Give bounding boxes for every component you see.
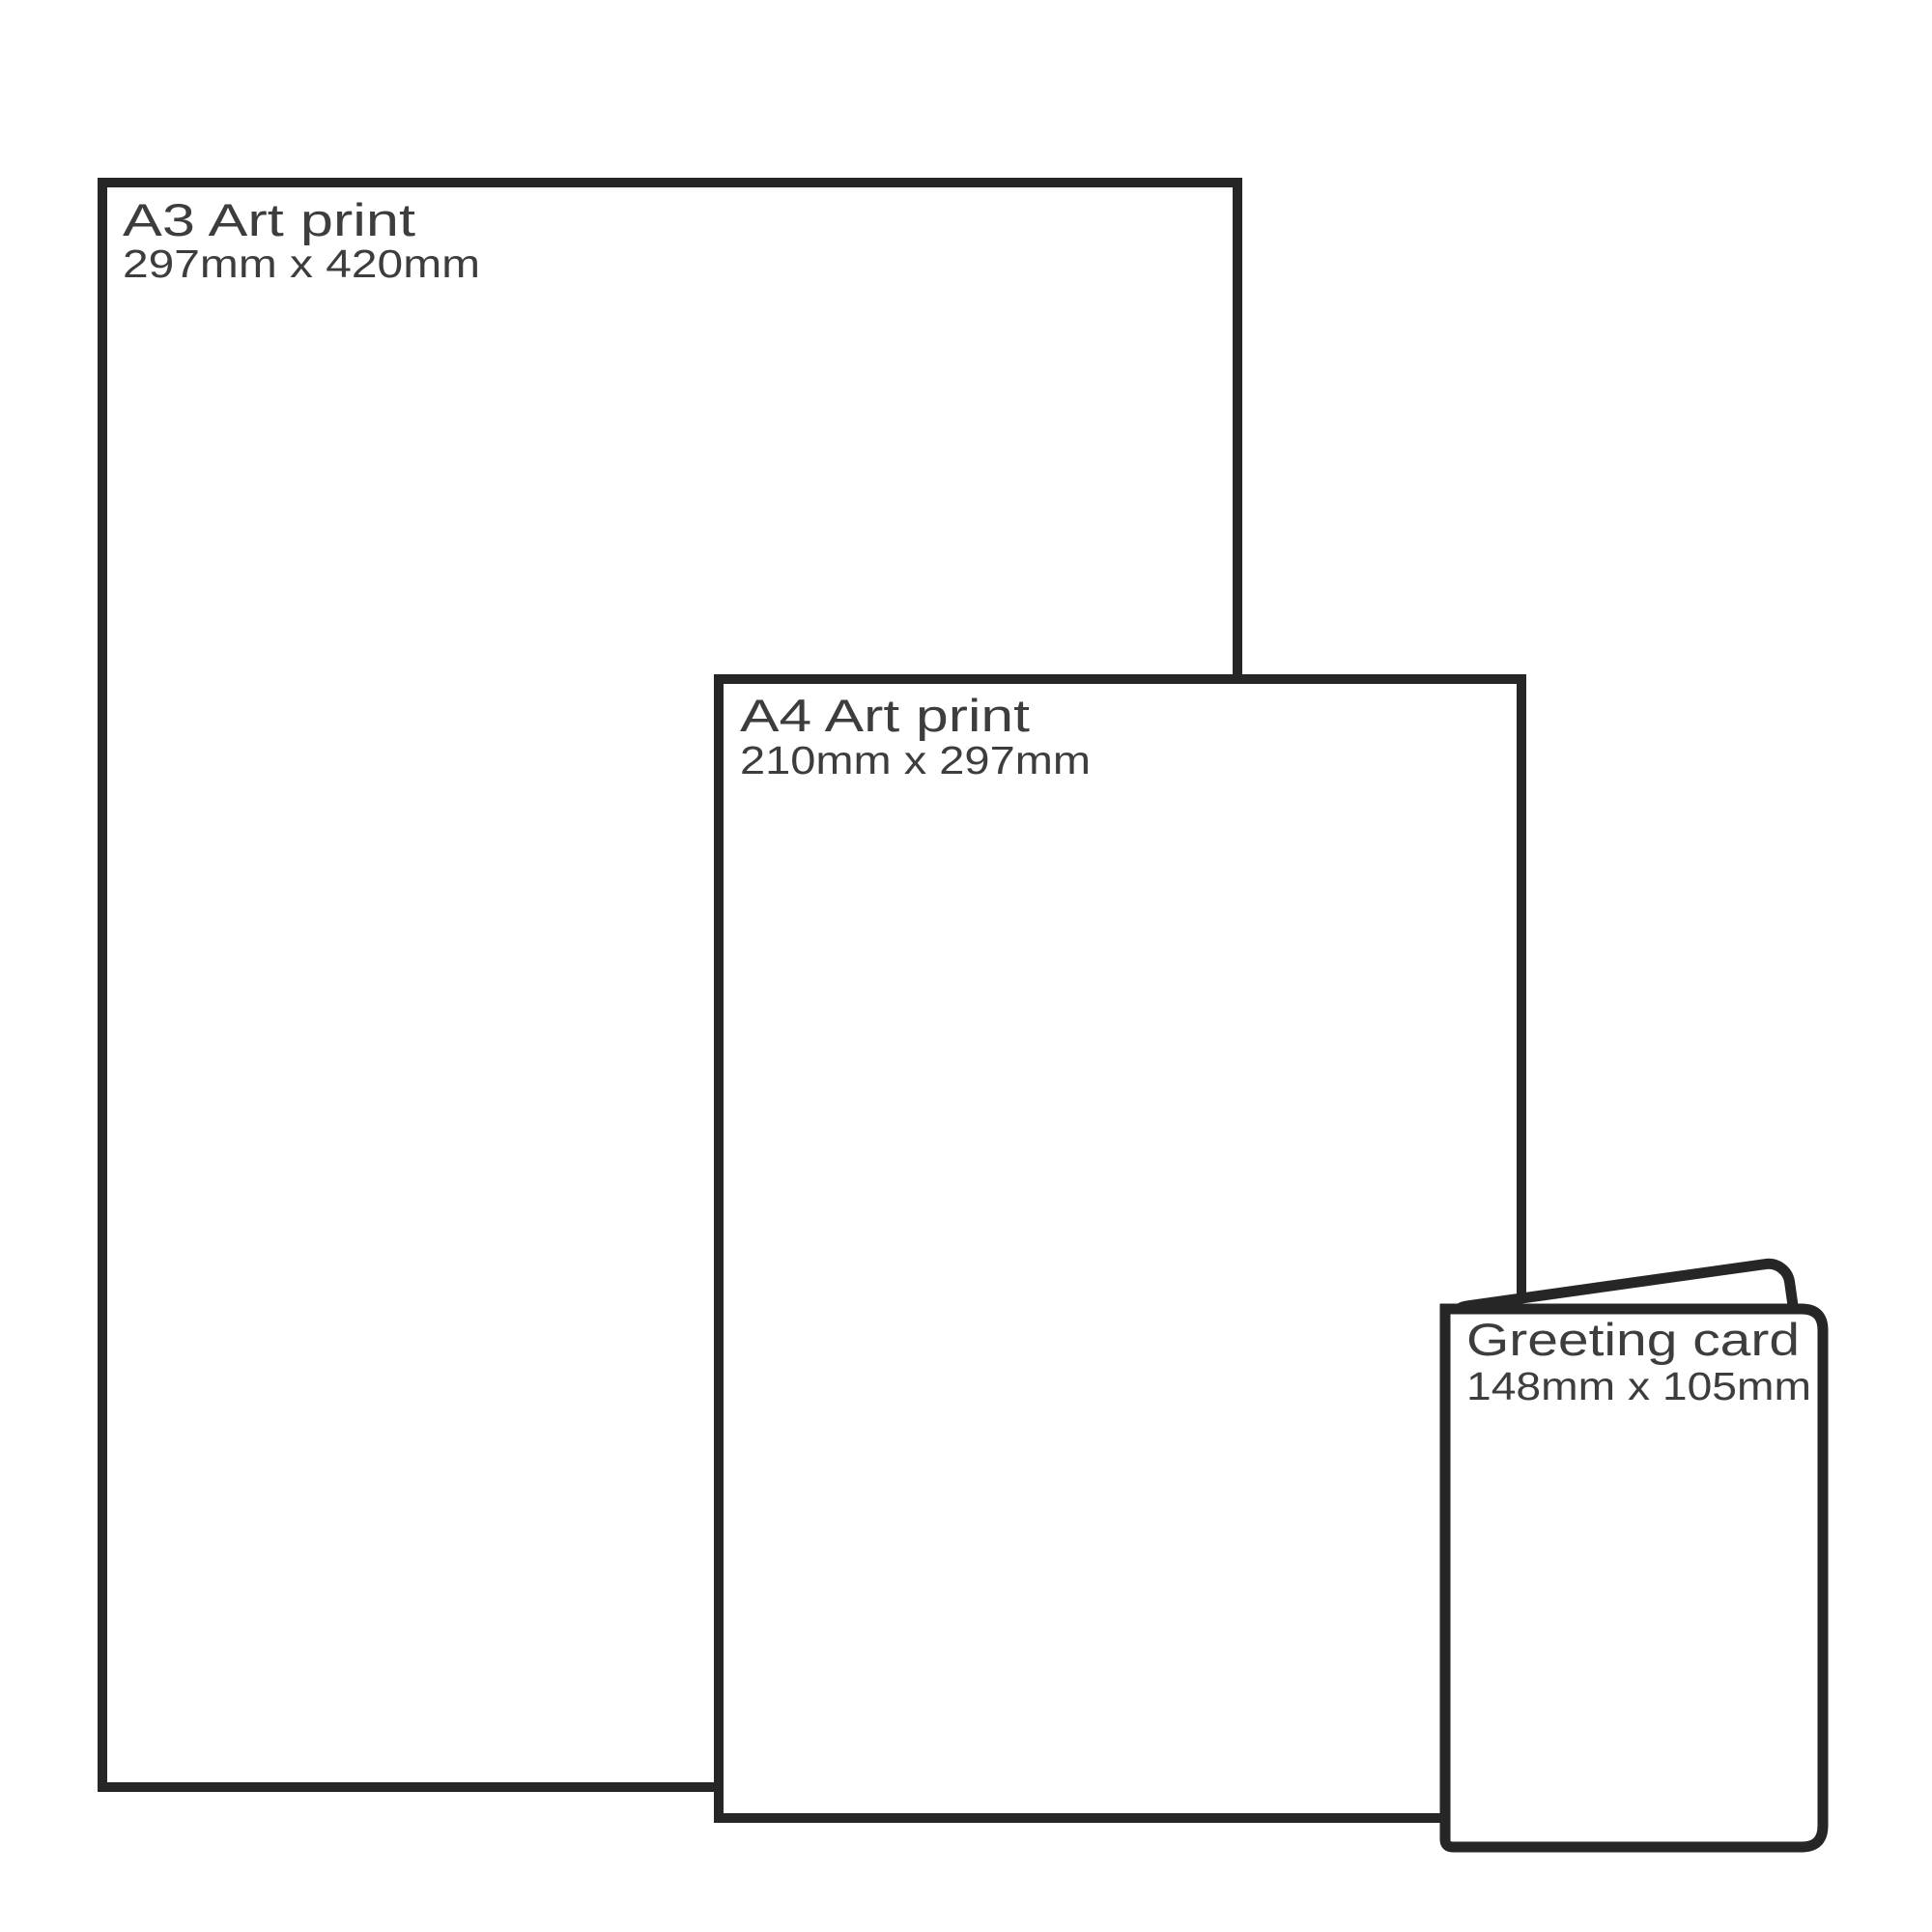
a3-title: A3 Art print bbox=[123, 194, 415, 245]
a4-title: A4 Art print bbox=[740, 690, 1030, 741]
a4-print-outline bbox=[719, 679, 1521, 1818]
greeting-card-title: Greeting card bbox=[1466, 1314, 1800, 1365]
a3-dimensions: 297mm x 420mm bbox=[123, 241, 480, 286]
diagram-canvas: A3 Art print 297mm x 420mm A4 Art print … bbox=[0, 0, 1932, 1932]
a4-dimensions: 210mm x 297mm bbox=[740, 738, 1091, 782]
greeting-card-dimensions: 148mm x 105mm bbox=[1466, 1364, 1811, 1408]
size-comparison-diagram: A3 Art print 297mm x 420mm A4 Art print … bbox=[0, 0, 1932, 1932]
